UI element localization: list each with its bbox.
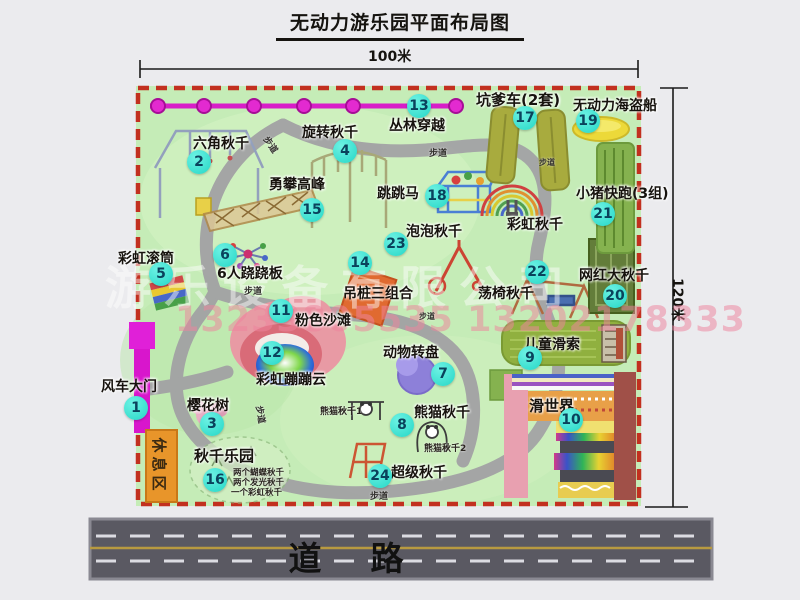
poi-badge-16: 16: [203, 468, 227, 492]
poi-label-1: 风车大门: [101, 376, 157, 396]
poi-badge-19: 19: [576, 109, 600, 133]
panda-swing-1-label: 熊猫秋千1: [320, 404, 362, 417]
poi-badge-7: 7: [431, 362, 455, 386]
poi-label-22: 荡椅秋千: [478, 283, 534, 303]
panda-swing-2-label: 熊猫秋千2: [424, 441, 466, 454]
poi-badge-24: 24: [368, 464, 392, 488]
poi-badge-3: 3: [200, 412, 224, 436]
park-plan-screenshot: 无动力游乐园平面布局图 100米 120米 游乐设备有限公司 132338055…: [0, 0, 800, 600]
page-title: 无动力游乐园平面布局图: [276, 8, 524, 41]
walkway-label-2: 步道: [429, 146, 447, 159]
poi-label-14: 吊桩三组合: [343, 283, 413, 303]
poi-badge-5: 5: [149, 262, 173, 286]
poi-badge-20: 20: [603, 284, 627, 308]
dimension-right-label: 120米: [668, 278, 688, 321]
road-label: 道 路: [250, 532, 450, 580]
poi-badge-11: 11: [269, 299, 293, 323]
poi-badge-17: 17: [513, 106, 537, 130]
poi-badge-2: 2: [187, 150, 211, 174]
poi-label-20: 网红大秋千: [579, 265, 649, 285]
poi-label-15: 勇攀高峰: [269, 174, 325, 194]
poi-badge-4: 4: [333, 139, 357, 163]
poi-badge-18: 18: [425, 184, 449, 208]
page-title-row: 无动力游乐园平面布局图: [0, 8, 800, 41]
poi-badge-6: 6: [213, 243, 237, 267]
walkway-label-4: 步道: [244, 284, 262, 297]
poi-badge-23: 23: [384, 232, 408, 256]
poi-badge-14: 14: [348, 251, 372, 275]
poi-badge-10: 10: [559, 408, 583, 432]
poi-label-11: 粉色沙滩: [295, 310, 351, 330]
dimension-top-label: 100米: [368, 46, 411, 66]
poi-badge-12: 12: [260, 341, 284, 365]
poi-label-23: 泡泡秋千: [406, 221, 462, 241]
poi-badge-9: 9: [518, 346, 542, 370]
poi-badge-22: 22: [525, 260, 549, 284]
poi-label-13: 丛林穿越: [389, 115, 445, 135]
rest-area-label: 休息区: [154, 431, 170, 501]
poi-label-24: 超级秋千: [391, 462, 447, 482]
poi-badge-13: 13: [407, 94, 431, 118]
poi-badge-15: 15: [300, 198, 324, 222]
poi-badge-1: 1: [124, 396, 148, 420]
slide-world-shape: [504, 372, 636, 500]
walkway-label-3: 步道: [539, 157, 555, 168]
poi-label-12: 彩虹蹦蹦云: [256, 369, 326, 389]
rainbow-swing-label: 彩虹秋千: [507, 214, 563, 234]
poi-label-18: 跳跳马: [377, 183, 419, 203]
poi-badge-8: 8: [390, 413, 414, 437]
walkway-label-7: 步道: [370, 489, 388, 502]
poi-label-8: 熊猫秋千: [414, 402, 470, 422]
poi-label-21: 小猪快跑(3组): [576, 183, 669, 203]
swing-park-item-3: 一个彩虹秋千: [231, 486, 282, 498]
poi-badge-21: 21: [591, 202, 615, 226]
walkway-label-5: 步道: [419, 311, 435, 322]
poi-label-7: 动物转盘: [383, 342, 439, 362]
poi-label-16: 秋千乐园: [194, 445, 254, 466]
